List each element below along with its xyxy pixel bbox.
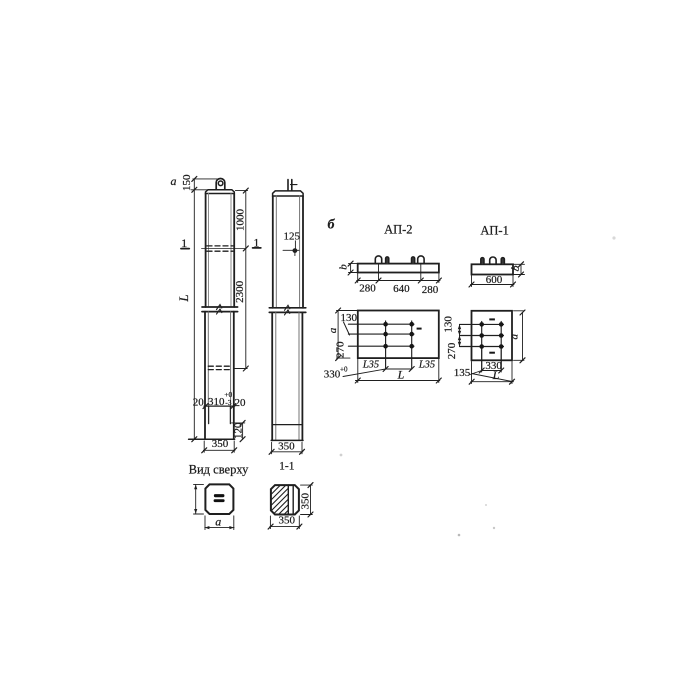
svg-text:L35: L35 (362, 359, 379, 370)
svg-text:270: 270 (335, 341, 347, 358)
svg-text:150: 150 (181, 174, 193, 191)
svg-text:Вид сверху: Вид сверху (189, 463, 249, 477)
svg-text:2300: 2300 (234, 280, 246, 303)
svg-text:350: 350 (212, 438, 229, 450)
svg-text:-3: -3 (225, 398, 231, 407)
svg-text:20: 20 (193, 396, 205, 408)
svg-text:125: 125 (284, 230, 301, 242)
svg-text:АП-1: АП-1 (480, 223, 508, 237)
svg-text:280: 280 (422, 284, 439, 296)
svg-text:270: 270 (446, 342, 458, 359)
svg-text:L: L (492, 368, 500, 382)
svg-text:1000: 1000 (235, 209, 247, 232)
svg-text:350: 350 (300, 493, 312, 510)
svg-text:a: a (327, 327, 339, 333)
svg-text:1: 1 (181, 236, 187, 250)
svg-text:L: L (176, 294, 191, 302)
svg-text:350: 350 (279, 515, 296, 527)
svg-text:330: 330 (324, 369, 341, 381)
svg-text:135: 135 (454, 367, 471, 379)
svg-text:130: 130 (340, 312, 357, 324)
svg-text:a: a (509, 334, 521, 340)
svg-text:АП-2: АП-2 (384, 222, 412, 236)
svg-text:a: a (215, 515, 221, 529)
svg-text:20: 20 (235, 397, 247, 409)
svg-text:350: 350 (278, 441, 295, 453)
svg-text:600: 600 (486, 274, 503, 286)
svg-text:a: a (171, 174, 177, 188)
svg-text:L: L (397, 368, 405, 382)
svg-text:120: 120 (233, 422, 245, 439)
svg-text:1: 1 (253, 235, 259, 249)
svg-text:640: 640 (393, 283, 410, 295)
svg-text:L35: L35 (418, 360, 435, 371)
svg-text:+0: +0 (340, 366, 348, 374)
svg-text:310: 310 (208, 396, 225, 408)
svg-text:b: b (338, 264, 350, 270)
svg-text:б: б (328, 218, 336, 233)
svg-text:130: 130 (443, 316, 455, 333)
svg-text:1-1: 1-1 (279, 460, 295, 472)
svg-text:280: 280 (359, 283, 376, 295)
